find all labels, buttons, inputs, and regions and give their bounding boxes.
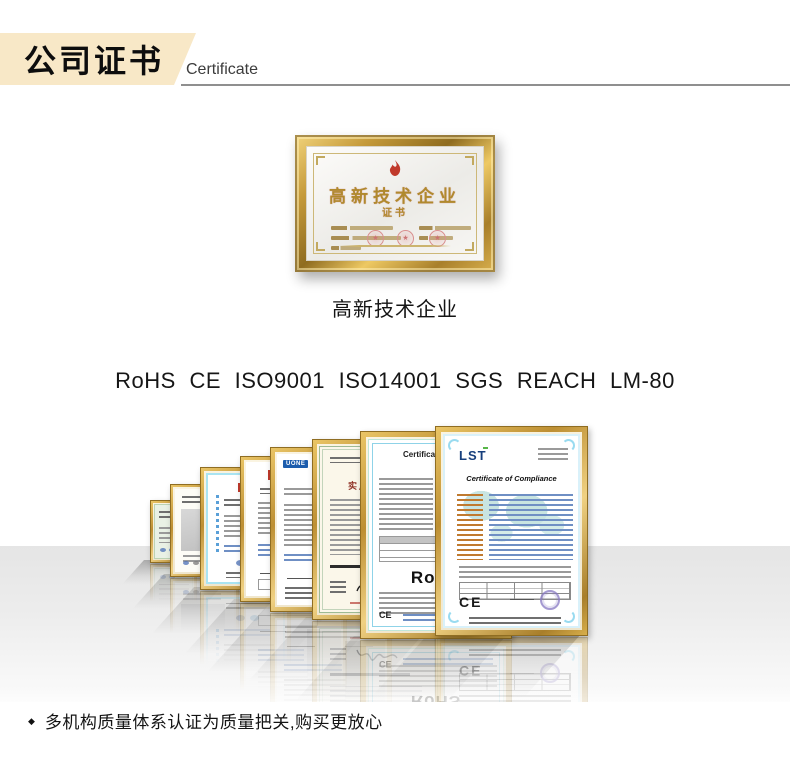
footer-note-text: 多机构质量体系认证为质量把关,购买更放心 <box>45 708 383 733</box>
flame-logo-icon <box>387 159 403 179</box>
company-certificate-page: 公司证书 Certificate 高新技术企业 证书 ★ ★ ★ 高新技术企业 <box>0 0 790 764</box>
corner-flourish <box>316 242 325 251</box>
certificate-showcase: UONE Test Re 实用新型 <box>0 420 790 702</box>
header-divider <box>181 84 790 86</box>
corner-flourish <box>316 156 325 165</box>
certificate-reflection: LST Certificate of Compliance CE <box>435 637 588 702</box>
plaque-subtitle: 证书 <box>307 204 483 219</box>
corner-flourish <box>465 242 474 251</box>
text-line <box>331 236 401 240</box>
lst-logo: LST <box>459 448 487 463</box>
text-line <box>331 226 393 230</box>
featured-certificate-frame: 高新技术企业 证书 ★ ★ ★ <box>295 135 495 272</box>
round-stamp <box>540 590 560 610</box>
featured-certificate-caption: 高新技术企业 <box>0 293 790 322</box>
lst-certificate-title: Certificate of Compliance <box>445 474 578 483</box>
page-subtitle: Certificate <box>186 61 258 79</box>
page-title: 公司证书 <box>0 36 164 82</box>
standards-line: RoHS CE ISO9001 ISO14001 SGS REACH LM-80 <box>0 368 790 394</box>
section-header-banner: 公司证书 <box>0 33 196 85</box>
certificate-thumb-8: LST Certificate of Compliance CE <box>435 426 588 636</box>
ce-mark: CE <box>459 594 482 610</box>
diamond-bullet-icon: ◆ <box>28 716 35 727</box>
featured-certificate-plaque: 高新技术企业 证书 ★ ★ ★ <box>306 146 484 261</box>
ce-mark-small: CE <box>379 610 392 620</box>
corner-flourish <box>465 156 474 165</box>
uone-logo: UONE <box>283 460 308 468</box>
lst-logo-accent <box>483 447 488 449</box>
text-line <box>419 226 471 230</box>
plaque-divider <box>339 245 452 247</box>
footer-note: ◆ 多机构质量体系认证为质量把关,购买更放心 <box>28 708 383 733</box>
